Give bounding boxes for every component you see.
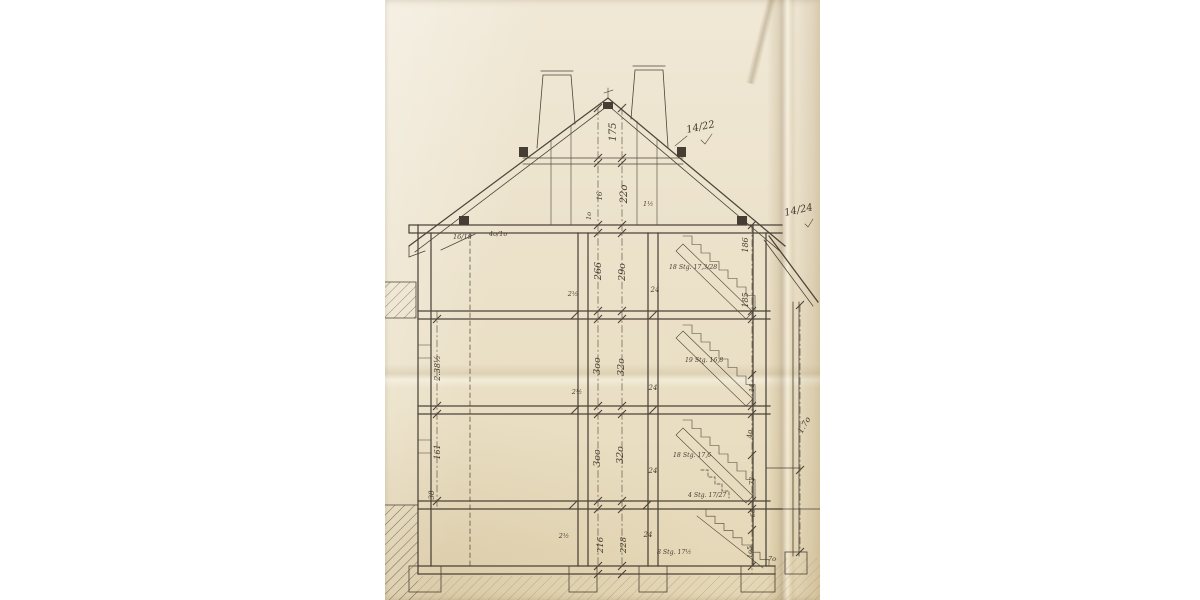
rafter-size-14-24: 14/24 (783, 202, 813, 219)
annotation-texts: 175 22o 16 1o 14/22 14/24 16/18 4o/1o 1½… (428, 119, 814, 563)
dim-collar-10: 1o (585, 212, 593, 220)
dim-attic-room-266: 266 (593, 262, 604, 281)
building-section-drawing: 175 22o 16 1o 14/22 14/24 16/18 4o/1o 1½… (385, 0, 820, 600)
rafter-size-14-22: 14/22 (685, 119, 715, 136)
beam-size-40-10: 4o/1o (488, 230, 507, 238)
stair-mid-label: 19 Stg. 16,8 (685, 357, 723, 364)
beam-size-16-18: 16/18 (453, 233, 472, 241)
tick-2half-mid: 2½ (571, 388, 582, 396)
stair-entry-label: 4 Stg. 17/27 (687, 492, 726, 499)
dimension-lines (433, 104, 813, 578)
dim-ridge-175: 175 (608, 122, 619, 141)
dim-right-40: 4o (746, 430, 754, 440)
dim-room-300-a: 3oo (592, 357, 603, 375)
dim-room-300-b: 3oo (592, 449, 603, 467)
dim-right-185: 185 (741, 292, 750, 307)
dim-floor-320-b: 32o (615, 446, 626, 464)
floor-slabs (409, 225, 820, 574)
walls (418, 225, 799, 574)
dim-right-72: 72 (748, 477, 756, 485)
stair-lower-label: 18 Stg. 17,6 (673, 452, 711, 459)
roof-structure (409, 88, 818, 306)
dim-left-38: 38 (428, 490, 436, 499)
dim-floor-320-a: 32o (616, 358, 627, 376)
dim-right-170: 1.7o (796, 415, 813, 435)
dim-left-161: 161 (433, 444, 442, 459)
dim-right-14: 14 (748, 384, 756, 392)
tick-24-lower: 24 (648, 467, 658, 475)
stair-attic-label: 18 Stg. 17,3/28 (669, 264, 717, 271)
dim-left-238half: 2.38½ (433, 355, 442, 382)
left-annex (385, 282, 416, 318)
dim-cellar-216: 216 (596, 536, 606, 554)
staircase (676, 236, 769, 568)
dim-attic-220: 22o (619, 185, 630, 205)
dim-right-186: 186 (741, 237, 750, 252)
dim-collar-16: 16 (596, 191, 604, 200)
tick-2half-attic: 2½ (567, 290, 578, 298)
tick-24-mid: 24 (648, 384, 658, 392)
stair-cellar-label: 8 Stg. 17½ (657, 549, 691, 556)
dim-attic-floor-290: 29o (617, 263, 628, 282)
blueprint-paper: 175 22o 16 1o 14/22 14/24 16/18 4o/1o 1½… (385, 0, 820, 600)
dim-right-70: 7o (768, 555, 776, 563)
dim-right-66: 66 (749, 509, 757, 517)
tick-24-attic: 24 (650, 286, 660, 294)
dim-1-half: 1½ (643, 200, 653, 208)
dim-right-105: 1o5 (746, 546, 754, 558)
tick-2half-cellar: 2½ (558, 532, 569, 540)
scanned-blueprint-page: 175 22o 16 1o 14/22 14/24 16/18 4o/1o 1½… (0, 0, 1200, 600)
dimension-ticks (433, 104, 804, 578)
dim-cellar-228: 228 (619, 536, 629, 554)
tick-24-cellar: 24 (643, 531, 653, 539)
